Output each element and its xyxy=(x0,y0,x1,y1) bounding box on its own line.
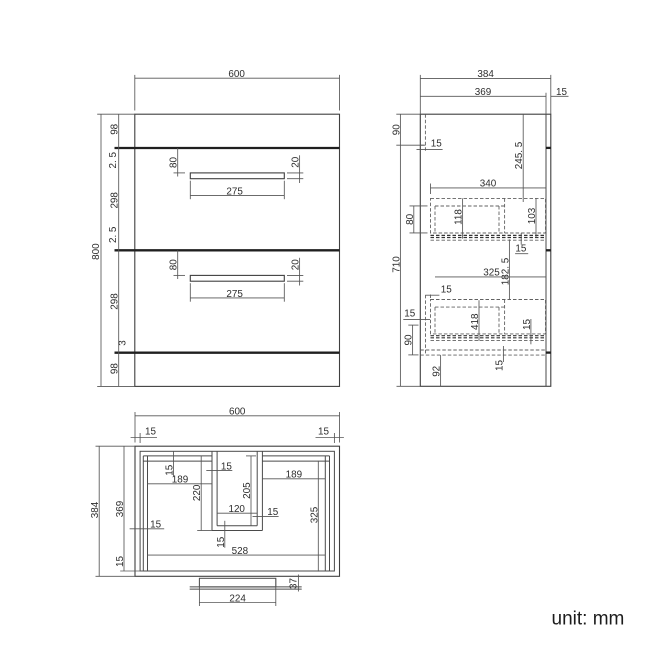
svg-text:80: 80 xyxy=(405,213,416,224)
svg-text:90: 90 xyxy=(391,124,402,135)
svg-text:2. 5: 2. 5 xyxy=(108,226,119,243)
svg-text:118: 118 xyxy=(454,209,465,225)
svg-text:800: 800 xyxy=(91,243,102,260)
svg-text:15: 15 xyxy=(145,426,156,437)
svg-text:15: 15 xyxy=(556,87,567,98)
svg-text:369: 369 xyxy=(115,500,126,517)
svg-text:298: 298 xyxy=(110,192,121,209)
svg-text:120: 120 xyxy=(228,504,245,515)
svg-text:3: 3 xyxy=(118,340,129,346)
svg-text:90: 90 xyxy=(404,334,415,345)
svg-text:92: 92 xyxy=(432,366,443,377)
svg-text:98: 98 xyxy=(110,363,121,374)
svg-text:224: 224 xyxy=(229,593,246,604)
svg-text:15: 15 xyxy=(165,464,176,475)
svg-text:384: 384 xyxy=(477,69,494,80)
svg-text:15: 15 xyxy=(404,309,415,320)
svg-text:15: 15 xyxy=(221,461,232,472)
svg-text:245. 5: 245. 5 xyxy=(514,141,525,169)
svg-text:384: 384 xyxy=(90,501,101,518)
svg-text:528: 528 xyxy=(232,546,249,557)
svg-text:325: 325 xyxy=(309,506,320,523)
svg-text:275: 275 xyxy=(226,186,243,197)
svg-text:15: 15 xyxy=(115,556,126,567)
svg-text:15: 15 xyxy=(441,285,452,296)
svg-text:15: 15 xyxy=(522,319,533,330)
svg-text:80: 80 xyxy=(169,157,180,168)
svg-text:710: 710 xyxy=(391,256,402,273)
svg-text:15: 15 xyxy=(515,244,526,255)
svg-text:325: 325 xyxy=(483,267,500,278)
svg-text:103: 103 xyxy=(527,207,538,224)
svg-text:600: 600 xyxy=(229,407,246,418)
svg-text:80: 80 xyxy=(169,259,180,270)
svg-text:418: 418 xyxy=(470,313,481,330)
svg-text:275: 275 xyxy=(226,289,243,300)
svg-text:15: 15 xyxy=(216,536,227,547)
svg-text:369: 369 xyxy=(475,87,492,98)
svg-text:15: 15 xyxy=(267,507,278,518)
svg-text:37: 37 xyxy=(289,578,300,589)
svg-text:220: 220 xyxy=(192,484,203,501)
svg-text:298: 298 xyxy=(110,293,121,310)
svg-text:15: 15 xyxy=(318,426,329,437)
svg-text:2. 5: 2. 5 xyxy=(108,151,119,168)
svg-text:205: 205 xyxy=(242,482,253,499)
svg-text:98: 98 xyxy=(110,123,121,134)
svg-text:600: 600 xyxy=(228,69,245,80)
svg-text:unit: mm: unit: mm xyxy=(552,609,625,630)
svg-text:15: 15 xyxy=(150,519,161,530)
svg-text:20: 20 xyxy=(291,259,302,270)
svg-text:15: 15 xyxy=(494,360,505,371)
svg-text:189: 189 xyxy=(286,470,303,481)
svg-text:340: 340 xyxy=(480,179,497,190)
svg-text:20: 20 xyxy=(291,156,302,167)
svg-text:182. 5: 182. 5 xyxy=(500,257,511,285)
svg-text:15: 15 xyxy=(431,138,442,149)
